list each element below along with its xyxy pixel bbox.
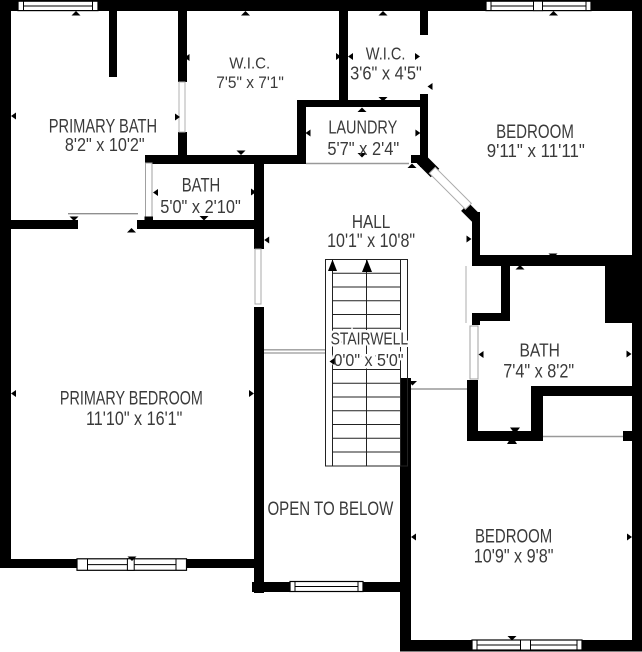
svg-text:BATH: BATH (520, 340, 560, 361)
svg-text:HALL: HALL (352, 212, 390, 232)
svg-text:BEDROOM: BEDROOM (475, 527, 552, 548)
svg-text:9'11" x 11'11": 9'11" x 11'11" (487, 141, 585, 161)
svg-text:5'0" x 2'10": 5'0" x 2'10" (160, 196, 241, 217)
svg-text:10'9" x 9'8": 10'9" x 9'8" (474, 547, 554, 568)
svg-text:PRIMARY BEDROOM: PRIMARY BEDROOM (60, 389, 203, 410)
svg-text:7'5" x 7'1": 7'5" x 7'1" (216, 73, 284, 92)
svg-text:11'10" x 16'1": 11'10" x 16'1" (86, 409, 182, 430)
svg-text:0'0" x 5'0": 0'0" x 5'0" (333, 350, 403, 370)
svg-text:8'2" x 10'2": 8'2" x 10'2" (65, 134, 145, 155)
svg-text:LAUNDRY: LAUNDRY (328, 116, 397, 137)
svg-text:3'6" x 4'5": 3'6" x 4'5" (350, 64, 422, 84)
svg-text:5'7" x 2'4": 5'7" x 2'4" (327, 138, 399, 159)
svg-text:BATH: BATH (182, 175, 221, 196)
svg-text:OPEN TO BELOW: OPEN TO BELOW (267, 499, 393, 520)
svg-text:STAIRWELL: STAIRWELL (331, 329, 409, 349)
svg-text:W.I.C.: W.I.C. (229, 55, 270, 72)
svg-text:7'4" x 8'2": 7'4" x 8'2" (503, 362, 574, 383)
svg-text:10'1" x 10'8": 10'1" x 10'8" (327, 231, 415, 252)
svg-text:W.I.C.: W.I.C. (366, 44, 406, 64)
